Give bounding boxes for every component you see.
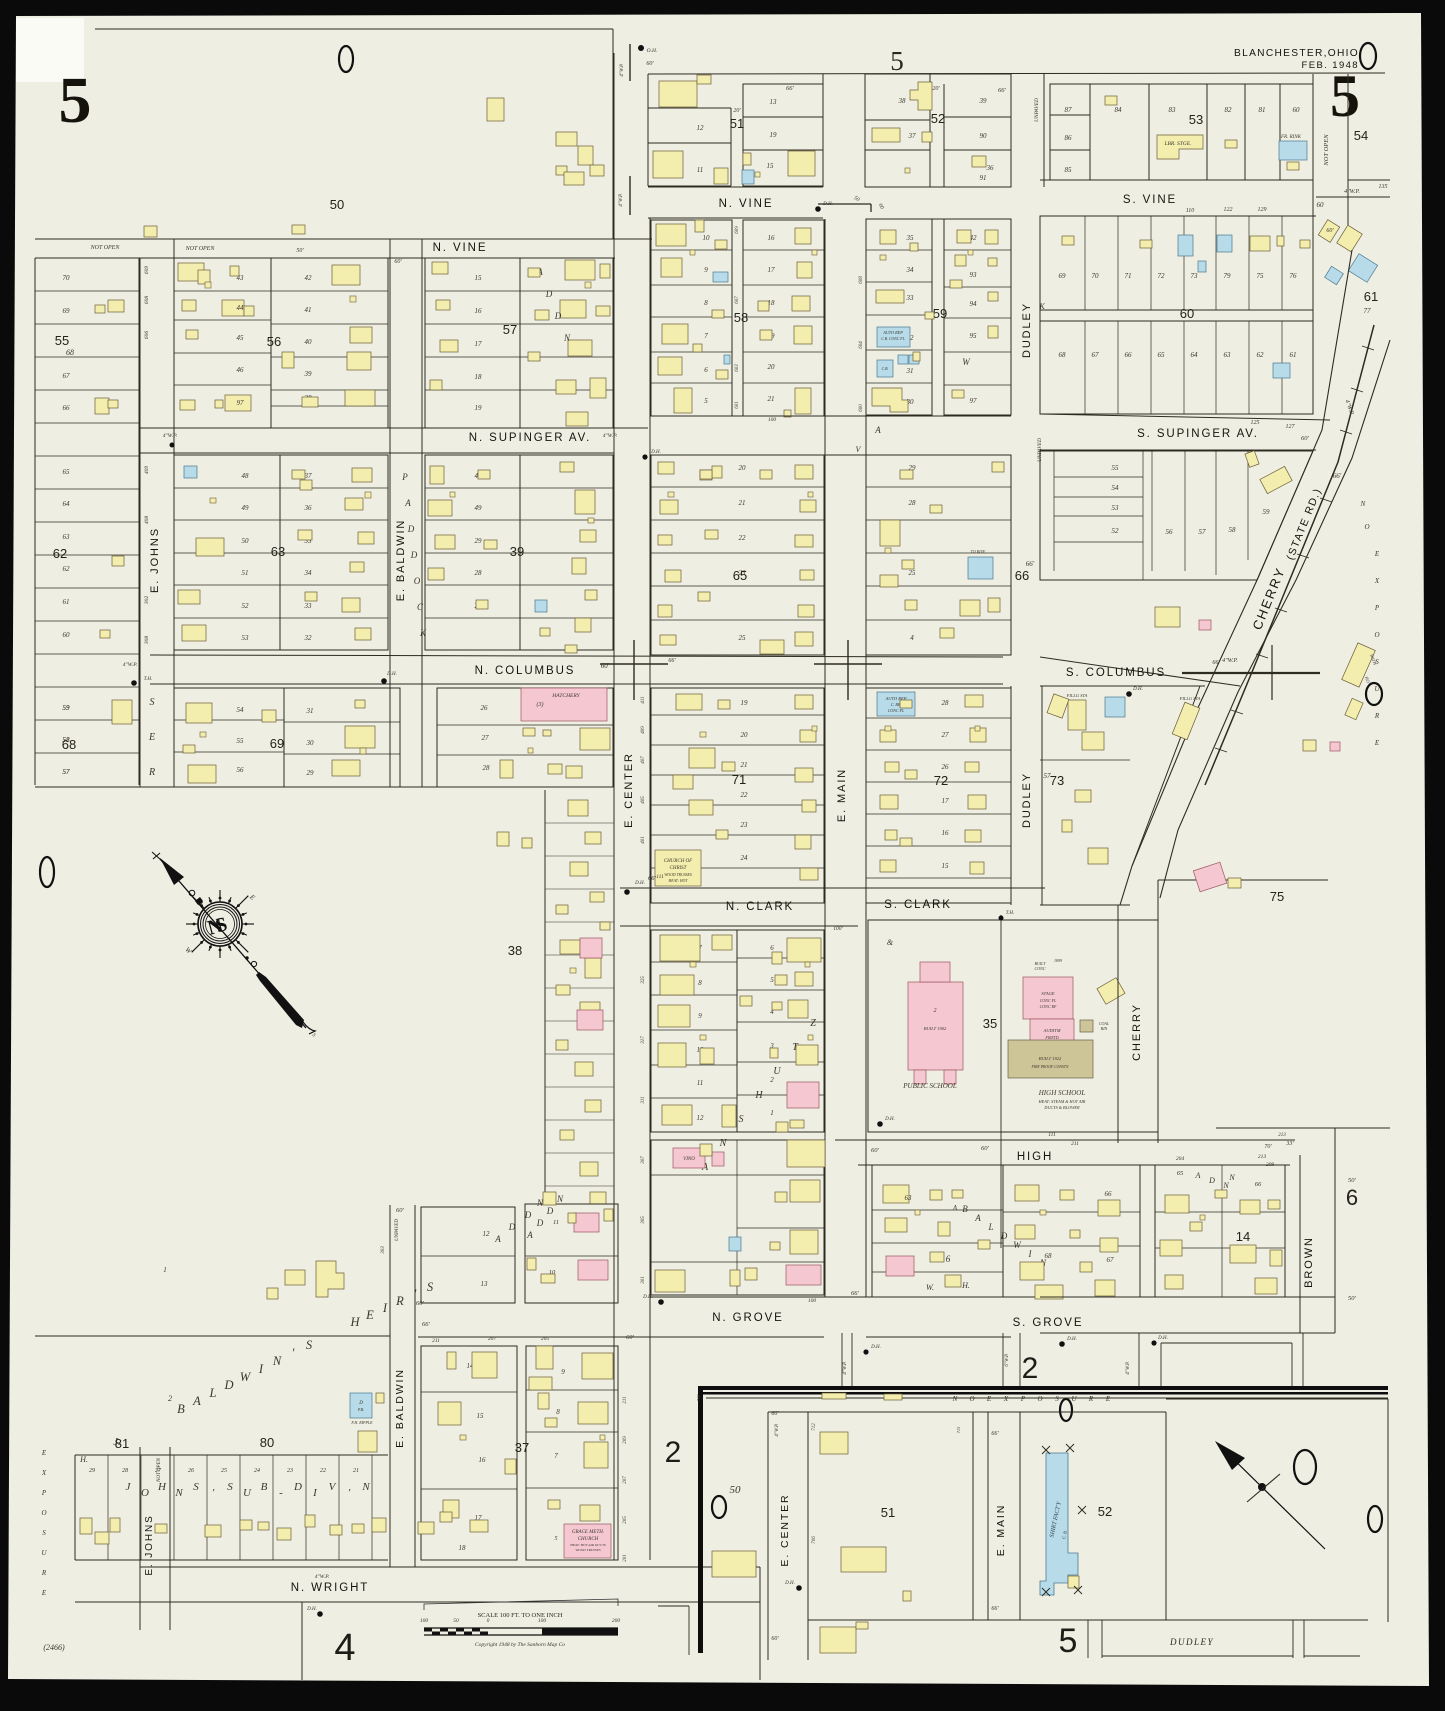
svg-text:S: S xyxy=(227,1481,233,1493)
svg-text:4"W.P.: 4"W.P. xyxy=(619,193,624,206)
svg-text:23: 23 xyxy=(287,1468,293,1474)
svg-text:13: 13 xyxy=(770,98,778,106)
svg-text:E: E xyxy=(148,732,155,743)
svg-text:52: 52 xyxy=(1098,1504,1112,1519)
svg-text:HEAT: STEAM & HOT AIR: HEAT: STEAM & HOT AIR xyxy=(1038,1099,1086,1104)
svg-text:CHURCH: CHURCH xyxy=(578,1537,599,1542)
svg-text:S: S xyxy=(306,1338,313,1352)
svg-text:13: 13 xyxy=(481,1280,489,1288)
svg-text:R: R xyxy=(148,767,155,778)
svg-text:O: O xyxy=(1037,1395,1042,1403)
svg-text:59: 59 xyxy=(63,704,71,712)
svg-text:5: 5 xyxy=(59,64,92,137)
svg-text:N. VINE: N. VINE xyxy=(719,198,774,210)
svg-text:52: 52 xyxy=(931,111,945,126)
svg-text:75: 75 xyxy=(1270,889,1284,904)
svg-text:81: 81 xyxy=(115,1436,129,1451)
svg-text:D.H.: D.H. xyxy=(1066,1337,1077,1342)
svg-text:S. SUPINGER AV.: S. SUPINGER AV. xyxy=(1137,428,1259,440)
svg-text:606: 606 xyxy=(144,331,150,340)
svg-text:94: 94 xyxy=(970,300,978,308)
svg-text:32: 32 xyxy=(304,634,313,642)
svg-text:125: 125 xyxy=(1251,420,1260,426)
svg-text:': ' xyxy=(292,1346,295,1360)
svg-text:53: 53 xyxy=(242,634,250,642)
svg-text:60': 60' xyxy=(871,1147,880,1154)
svg-text:A: A xyxy=(192,1394,201,1408)
svg-text:S: S xyxy=(150,697,155,708)
svg-text:50': 50' xyxy=(1348,1295,1357,1302)
svg-text:45: 45 xyxy=(237,334,245,342)
svg-text:FILLG STA: FILLG STA xyxy=(1179,696,1201,701)
svg-text:64: 64 xyxy=(1191,351,1199,359)
svg-text:28: 28 xyxy=(483,764,491,772)
svg-text:59: 59 xyxy=(1263,508,1271,516)
svg-text:55: 55 xyxy=(237,737,245,745)
svg-text:85: 85 xyxy=(1065,166,1073,174)
svg-text:21: 21 xyxy=(768,395,775,403)
svg-text:15: 15 xyxy=(477,1412,485,1420)
svg-text:77: 77 xyxy=(1364,307,1372,315)
svg-text:N. VINE: N. VINE xyxy=(433,242,488,254)
svg-text:91: 91 xyxy=(980,174,987,182)
svg-text:129: 129 xyxy=(1258,207,1267,213)
svg-text:E: E xyxy=(41,1449,47,1457)
svg-text:N: N xyxy=(1222,1181,1229,1190)
svg-text:68: 68 xyxy=(1045,1252,1053,1260)
svg-text:409: 409 xyxy=(641,726,646,734)
svg-text:58: 58 xyxy=(734,310,748,325)
svg-text:608: 608 xyxy=(859,276,864,284)
svg-text:27: 27 xyxy=(942,731,950,739)
svg-text:D: D xyxy=(536,1218,544,1228)
svg-text:B: B xyxy=(261,1481,268,1493)
svg-text:S: S xyxy=(1055,1395,1059,1403)
svg-text:50: 50 xyxy=(730,1484,742,1496)
svg-text:42: 42 xyxy=(305,274,313,282)
svg-text:A: A xyxy=(1195,1171,1201,1180)
svg-text:FEB. 1948: FEB. 1948 xyxy=(1302,60,1360,71)
svg-text:122: 122 xyxy=(1224,207,1233,213)
svg-text:25: 25 xyxy=(221,1468,227,1474)
svg-text:407: 407 xyxy=(641,756,646,764)
svg-text:66': 66' xyxy=(991,1431,999,1437)
svg-text:(2466): (2466) xyxy=(43,1643,65,1652)
svg-text:NOT OPEN: NOT OPEN xyxy=(90,245,121,251)
svg-text:63: 63 xyxy=(905,1194,913,1202)
svg-text:52: 52 xyxy=(1112,527,1120,535)
svg-text:53: 53 xyxy=(1189,112,1203,127)
svg-text:603: 603 xyxy=(735,364,740,372)
svg-text:411: 411 xyxy=(641,696,646,703)
svg-text:69: 69 xyxy=(1059,272,1067,280)
svg-text:1: 1 xyxy=(163,1266,167,1274)
svg-text:UNPAVED: UNPAVED xyxy=(395,1219,400,1241)
svg-text:66': 66' xyxy=(1212,660,1220,666)
svg-text:100: 100 xyxy=(420,1618,429,1624)
svg-text:2: 2 xyxy=(1022,1352,1039,1385)
svg-text:100: 100 xyxy=(538,1618,547,1624)
svg-text:303: 303 xyxy=(381,1246,386,1254)
svg-text:12: 12 xyxy=(697,124,705,132)
svg-text:L: L xyxy=(987,1222,993,1232)
svg-text:52: 52 xyxy=(242,602,250,610)
svg-text:6"W.P.: 6"W.P. xyxy=(1005,1353,1010,1366)
svg-text:66': 66' xyxy=(648,875,657,882)
svg-text:26: 26 xyxy=(481,704,489,712)
svg-text:409: 409 xyxy=(143,466,150,475)
svg-text:E. MAIN: E. MAIN xyxy=(836,768,848,822)
svg-text:72: 72 xyxy=(1158,272,1166,280)
svg-text:5: 5 xyxy=(1059,1622,1078,1660)
svg-text:19: 19 xyxy=(770,131,778,139)
svg-text:18: 18 xyxy=(475,373,483,381)
svg-text:&: & xyxy=(887,938,894,947)
svg-text:D.H.: D.H. xyxy=(1132,687,1143,692)
svg-text:O: O xyxy=(969,1395,974,1403)
svg-text:33: 33 xyxy=(906,294,915,302)
svg-text:D: D xyxy=(1208,1176,1215,1185)
svg-text:D: D xyxy=(554,311,562,321)
svg-text:12: 12 xyxy=(483,1230,491,1238)
svg-text:80: 80 xyxy=(260,1435,274,1450)
svg-text:19: 19 xyxy=(475,404,483,412)
svg-text:O: O xyxy=(141,1487,149,1499)
svg-text:72: 72 xyxy=(934,773,948,788)
svg-text:308: 308 xyxy=(144,636,150,646)
svg-text:16: 16 xyxy=(479,1456,487,1464)
svg-text:67: 67 xyxy=(63,372,71,380)
svg-text:17: 17 xyxy=(768,266,776,274)
svg-text:R: R xyxy=(1374,712,1380,720)
svg-text:213: 213 xyxy=(1278,1133,1286,1138)
svg-text:19: 19 xyxy=(741,699,749,707)
svg-text:(3): (3) xyxy=(537,701,544,708)
svg-text:38: 38 xyxy=(508,943,522,958)
svg-text:71: 71 xyxy=(732,772,746,787)
svg-text:60': 60' xyxy=(771,1636,779,1642)
svg-text:57: 57 xyxy=(503,322,517,337)
svg-text:26: 26 xyxy=(942,763,950,771)
svg-text:X: X xyxy=(1374,577,1380,585)
svg-text:17: 17 xyxy=(475,340,483,348)
svg-text:715: 715 xyxy=(956,1426,961,1434)
svg-text:33': 33' xyxy=(1285,1141,1294,1147)
svg-text:N. GROVE: N. GROVE xyxy=(712,1312,783,1324)
svg-text:307: 307 xyxy=(641,1156,646,1164)
svg-text:N: N xyxy=(563,333,571,343)
svg-text:P: P xyxy=(41,1489,47,1497)
svg-text:111: 111 xyxy=(1048,1132,1056,1138)
svg-text:N: N xyxy=(272,1354,282,1368)
svg-text:61: 61 xyxy=(1290,351,1297,359)
svg-text:718: 718 xyxy=(696,1394,701,1402)
svg-text:DUDLEY: DUDLEY xyxy=(1169,1637,1214,1647)
svg-text:20': 20' xyxy=(733,108,741,114)
svg-text:P: P xyxy=(1020,1395,1026,1403)
svg-text:21: 21 xyxy=(741,761,748,769)
svg-text:60: 60 xyxy=(63,631,71,639)
svg-text:T.H.: T.H. xyxy=(144,677,153,682)
svg-text:DUDLEY: DUDLEY xyxy=(1021,302,1033,358)
svg-text:86: 86 xyxy=(1065,134,1073,142)
svg-text:97: 97 xyxy=(970,397,978,405)
svg-text:63: 63 xyxy=(63,533,71,541)
svg-text:60': 60' xyxy=(396,1207,405,1214)
svg-text:37: 37 xyxy=(515,1440,529,1455)
svg-text:DUDLEY: DUDLEY xyxy=(1021,772,1033,828)
svg-text:28: 28 xyxy=(942,699,950,707)
svg-text:D.H.: D.H. xyxy=(386,672,397,677)
svg-text:205: 205 xyxy=(623,1516,628,1524)
svg-text:29: 29 xyxy=(307,769,315,777)
svg-text:26: 26 xyxy=(188,1468,194,1474)
svg-text:49: 49 xyxy=(475,504,483,512)
svg-text:N: N xyxy=(952,1395,958,1403)
svg-text:W.: W. xyxy=(926,1283,934,1292)
svg-text:E. MAIN: E. MAIN xyxy=(995,1504,1007,1556)
svg-text:601: 601 xyxy=(735,401,740,409)
svg-text:H: H xyxy=(157,1481,167,1493)
svg-text:609: 609 xyxy=(144,266,150,275)
svg-text:23: 23 xyxy=(739,569,747,577)
svg-text:S: S xyxy=(193,1481,199,1493)
svg-text:N: N xyxy=(361,1481,370,1493)
svg-text:H: H xyxy=(754,1090,763,1101)
svg-text:66': 66' xyxy=(668,658,676,664)
svg-text:4"W.P.: 4"W.P. xyxy=(603,432,618,439)
svg-text:E. CENTER: E. CENTER xyxy=(623,752,635,828)
svg-text:712: 712 xyxy=(812,1423,817,1431)
svg-text:R: R xyxy=(1088,1395,1094,1403)
svg-text:10: 10 xyxy=(703,234,711,242)
svg-text:66': 66' xyxy=(422,1321,431,1328)
svg-text:87: 87 xyxy=(1065,106,1073,114)
svg-text:68: 68 xyxy=(1059,351,1067,359)
svg-text:46: 46 xyxy=(237,366,245,374)
svg-text:56: 56 xyxy=(267,334,281,349)
svg-text:5: 5 xyxy=(890,46,904,76)
svg-text:5: 5 xyxy=(555,1536,558,1542)
svg-text:301: 301 xyxy=(641,1276,646,1284)
svg-text:CONC FL: CONC FL xyxy=(1040,998,1057,1003)
svg-text:20: 20 xyxy=(739,464,747,472)
svg-text:S. CLARK: S. CLARK xyxy=(884,899,952,911)
svg-text:O: O xyxy=(1364,523,1369,531)
svg-text:58: 58 xyxy=(63,736,71,744)
svg-text:D: D xyxy=(223,1378,233,1392)
svg-text:76: 76 xyxy=(1290,272,1298,280)
svg-text:FR. RINK: FR. RINK xyxy=(1280,135,1302,140)
svg-text:21: 21 xyxy=(353,1468,359,1474)
svg-text:S. VINE: S. VINE xyxy=(1123,194,1177,206)
svg-text:60': 60' xyxy=(981,1145,990,1152)
svg-text:84: 84 xyxy=(1115,106,1123,114)
svg-text:54: 54 xyxy=(237,706,245,714)
svg-text:S. GROVE: S. GROVE xyxy=(1013,1317,1084,1329)
svg-text:95: 95 xyxy=(970,332,978,340)
svg-text:HATCHERY: HATCHERY xyxy=(551,693,580,699)
svg-text:93: 93 xyxy=(970,271,978,279)
svg-text:15: 15 xyxy=(767,162,775,170)
svg-text:211: 211 xyxy=(432,1338,440,1344)
svg-text:S: S xyxy=(427,1280,434,1294)
svg-text:56: 56 xyxy=(237,766,245,774)
svg-text:70: 70 xyxy=(63,274,71,282)
svg-text:R: R xyxy=(395,1294,404,1308)
svg-text:15: 15 xyxy=(475,274,483,282)
svg-text:69: 69 xyxy=(270,736,284,751)
svg-text:P.B.: P.B. xyxy=(357,1407,364,1412)
svg-text:Copyright 1948 by The Sanborn: Copyright 1948 by The Sanborn Map Co xyxy=(475,1641,565,1648)
svg-text:C: C xyxy=(417,602,424,612)
svg-text:S. COLUMBUS: S. COLUMBUS xyxy=(1066,667,1166,679)
svg-text:D.H.: D.H. xyxy=(870,1345,881,1350)
svg-text:6: 6 xyxy=(1346,1185,1358,1210)
svg-text:23: 23 xyxy=(741,821,749,829)
svg-text:CHRIST: CHRIST xyxy=(670,866,688,871)
svg-text:5: 5 xyxy=(704,397,708,405)
svg-text:66: 66 xyxy=(1015,568,1029,583)
svg-text:209: 209 xyxy=(1266,1162,1275,1168)
svg-text:E. JOHNS: E. JOHNS xyxy=(144,1514,155,1575)
svg-text:4"W.P.: 4"W.P. xyxy=(315,1573,330,1580)
svg-text:E. CENTER: E. CENTER xyxy=(779,1493,791,1566)
svg-text:STAGE: STAGE xyxy=(1041,991,1054,996)
svg-text:71: 71 xyxy=(1125,272,1132,280)
svg-text:35: 35 xyxy=(983,1016,997,1031)
svg-text:65: 65 xyxy=(1177,1170,1184,1177)
svg-text:29: 29 xyxy=(89,1468,95,1474)
svg-text:209: 209 xyxy=(623,1436,628,1444)
svg-text:50': 50' xyxy=(296,248,304,254)
svg-text:X: X xyxy=(1003,1395,1009,1403)
svg-text:D.H.: D.H. xyxy=(884,1117,895,1122)
svg-text:K: K xyxy=(419,628,427,638)
svg-text:35: 35 xyxy=(906,234,915,242)
svg-text:UNPAVED: UNPAVED xyxy=(1034,98,1040,122)
svg-text:27: 27 xyxy=(155,1468,162,1474)
svg-text:39: 39 xyxy=(304,370,313,378)
svg-text:607: 607 xyxy=(735,296,740,304)
svg-text:54: 54 xyxy=(1354,128,1368,143)
svg-text:WOOD TRUSSES: WOOD TRUSSES xyxy=(575,1548,601,1552)
svg-text:9: 9 xyxy=(704,266,708,274)
svg-text:LBR. STGE.: LBR. STGE. xyxy=(1163,141,1191,147)
svg-text:FILLG STA: FILLG STA xyxy=(1066,693,1088,698)
svg-text:SCALE 100 FT. TO ONE INCH: SCALE 100 FT. TO ONE INCH xyxy=(478,1612,563,1619)
svg-text:66': 66' xyxy=(851,1290,860,1297)
svg-text:11: 11 xyxy=(553,1219,559,1226)
svg-text:C.B. CONC FL: C.B. CONC FL xyxy=(881,337,904,341)
svg-text:302: 302 xyxy=(144,596,150,606)
svg-text:BROWN: BROWN xyxy=(1303,1236,1315,1288)
svg-text:4"W.P.: 4"W.P. xyxy=(1344,188,1360,195)
svg-text:62: 62 xyxy=(1257,351,1265,359)
svg-text:127: 127 xyxy=(1286,424,1296,430)
svg-text:36: 36 xyxy=(986,164,995,172)
svg-text:1899: 1899 xyxy=(1054,958,1062,963)
svg-text:7: 7 xyxy=(704,332,708,340)
svg-text:CHURCH OF: CHURCH OF xyxy=(664,859,693,864)
svg-text:204: 204 xyxy=(1176,1155,1185,1162)
svg-text:24: 24 xyxy=(254,1467,260,1474)
svg-text:51: 51 xyxy=(242,569,249,577)
svg-text:AUDITM: AUDITM xyxy=(1043,1028,1061,1033)
svg-text:50': 50' xyxy=(1348,1177,1357,1184)
svg-text:N. CLARK: N. CLARK xyxy=(726,901,794,913)
svg-text:20': 20' xyxy=(932,86,940,92)
svg-text:51: 51 xyxy=(730,116,744,131)
svg-text:90: 90 xyxy=(980,132,988,140)
svg-text:16: 16 xyxy=(768,234,776,242)
svg-text:401: 401 xyxy=(641,836,646,844)
svg-text:67: 67 xyxy=(1092,351,1100,359)
svg-text:53: 53 xyxy=(1112,504,1120,512)
svg-text:NOT OPEN: NOT OPEN xyxy=(185,246,216,252)
svg-text:41: 41 xyxy=(305,306,312,314)
svg-text:21: 21 xyxy=(739,499,746,507)
svg-text:33: 33 xyxy=(304,602,313,610)
svg-text:211: 211 xyxy=(1071,1141,1079,1147)
svg-text:405: 405 xyxy=(641,796,646,804)
svg-text:31: 31 xyxy=(306,707,314,715)
svg-text:0: 0 xyxy=(487,1618,490,1624)
svg-text:60': 60' xyxy=(626,1334,635,1341)
svg-text:608: 608 xyxy=(144,296,150,305)
svg-text:1: 1 xyxy=(770,1109,774,1117)
svg-text:28: 28 xyxy=(122,1468,128,1474)
svg-text:70: 70 xyxy=(1092,272,1100,280)
svg-text:X: X xyxy=(41,1469,47,1477)
svg-text:65: 65 xyxy=(1158,351,1166,359)
svg-text:200: 200 xyxy=(612,1618,621,1624)
svg-text:4: 4 xyxy=(910,634,914,642)
svg-text:9: 9 xyxy=(561,1368,565,1376)
svg-text:BUILT 1902: BUILT 1902 xyxy=(924,1026,947,1031)
svg-text:6: 6 xyxy=(946,1254,951,1264)
svg-text:61: 61 xyxy=(63,598,70,606)
svg-text:205: 205 xyxy=(541,1336,550,1342)
svg-text:U: U xyxy=(243,1487,252,1499)
svg-text:59: 59 xyxy=(933,306,947,321)
svg-text:N: N xyxy=(1228,1173,1235,1182)
svg-text:Z: Z xyxy=(810,1018,816,1029)
svg-text:311: 311 xyxy=(641,1096,646,1103)
svg-text:604: 604 xyxy=(859,341,864,349)
svg-text:39: 39 xyxy=(979,97,988,105)
svg-text:9: 9 xyxy=(698,1012,702,1020)
svg-text:16: 16 xyxy=(942,829,950,837)
svg-text:58: 58 xyxy=(1229,526,1237,534)
svg-text:FIRSTD: FIRSTD xyxy=(1044,1035,1058,1040)
svg-text:60': 60' xyxy=(394,259,402,265)
svg-text:E. JOHNS: E. JOHNS xyxy=(149,527,161,593)
svg-text:37: 37 xyxy=(908,132,917,140)
svg-text:57: 57 xyxy=(1199,528,1207,536)
svg-text:P: P xyxy=(1374,604,1380,612)
svg-text:211: 211 xyxy=(623,1396,628,1403)
svg-text:AUTO REP: AUTO REP xyxy=(882,330,903,335)
svg-text:60: 60 xyxy=(1293,106,1301,114)
svg-text:4"W.P.: 4"W.P. xyxy=(775,1423,780,1436)
svg-text:75: 75 xyxy=(1257,272,1265,280)
svg-text:N: N xyxy=(1360,500,1366,508)
svg-text:C.B.: C.B. xyxy=(882,367,889,371)
svg-text:600: 600 xyxy=(859,404,864,412)
svg-text:15: 15 xyxy=(942,862,950,870)
svg-text:69: 69 xyxy=(63,307,71,315)
